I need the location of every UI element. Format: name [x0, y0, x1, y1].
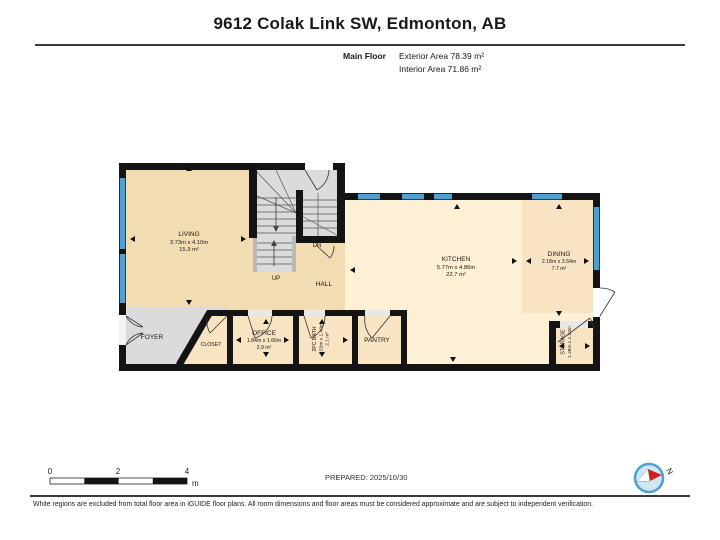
pantry-door-opening [365, 310, 390, 316]
patio-door-opening [593, 288, 600, 317]
dining-dims: 2.18m x 3.54m [542, 259, 576, 265]
scale-tick-2: 2 [116, 467, 121, 476]
scale-tick-4: 4 [185, 467, 190, 476]
disclaimer-text: White regions are excluded from total fl… [33, 501, 693, 508]
bath-door-opening [304, 310, 325, 316]
compass-north-label: N [664, 467, 675, 477]
closet-name: CLOSET [201, 342, 223, 348]
storage-name: STORAGE [561, 329, 567, 355]
foyer-name: FOYER [141, 334, 164, 341]
office-name: OFFICE [252, 330, 276, 337]
office-area: 2.9 m² [257, 345, 272, 351]
hall-name: HALL [316, 281, 333, 288]
office-dims: 1.84m x 1.66m [247, 338, 281, 344]
dining-area: 7.7 m² [552, 266, 567, 272]
kitchen-dims: 5.77m x 4.86m [437, 265, 476, 271]
office-door-opening [248, 310, 272, 316]
bath-name: 2PC BATH [312, 326, 318, 351]
scale-tick-0: 0 [48, 467, 53, 476]
floorplan-canvas: LIVING 3.73m x 4.10m 15.3 m² KITCHEN 5.7… [0, 0, 720, 540]
compass-icon: N [635, 464, 675, 492]
footer-divider [30, 495, 690, 497]
scale-unit: m [192, 479, 199, 488]
front-door-opening [119, 315, 126, 345]
dn-label: DN [313, 243, 322, 249]
living-name: LIVING [178, 231, 199, 238]
bath-area: 2.1 m² [325, 332, 331, 346]
storage-dims: 1.28m x 1.23m [567, 326, 573, 358]
kitchen-area: 22.7 m² [446, 272, 466, 278]
bath-dims: 1.53m x 1.40m [319, 323, 325, 355]
stair-door-opening [305, 163, 333, 170]
dining-name: DINING [548, 251, 571, 258]
prepared-date: PREPARED: 2025/10/30 [325, 473, 407, 482]
storage-door-opening [560, 321, 588, 328]
floorplan-page: 9612 Colak Link SW, Edmonton, AB Main Fl… [0, 0, 720, 540]
kitchen-name: KITCHEN [442, 256, 471, 263]
pantry-name: PANTRY [364, 337, 390, 344]
scale-bar: 0 2 4 m [48, 467, 199, 488]
living-area: 15.3 m² [179, 247, 199, 253]
living-dims: 3.73m x 4.10m [170, 240, 209, 246]
up-label: UP [272, 276, 280, 282]
